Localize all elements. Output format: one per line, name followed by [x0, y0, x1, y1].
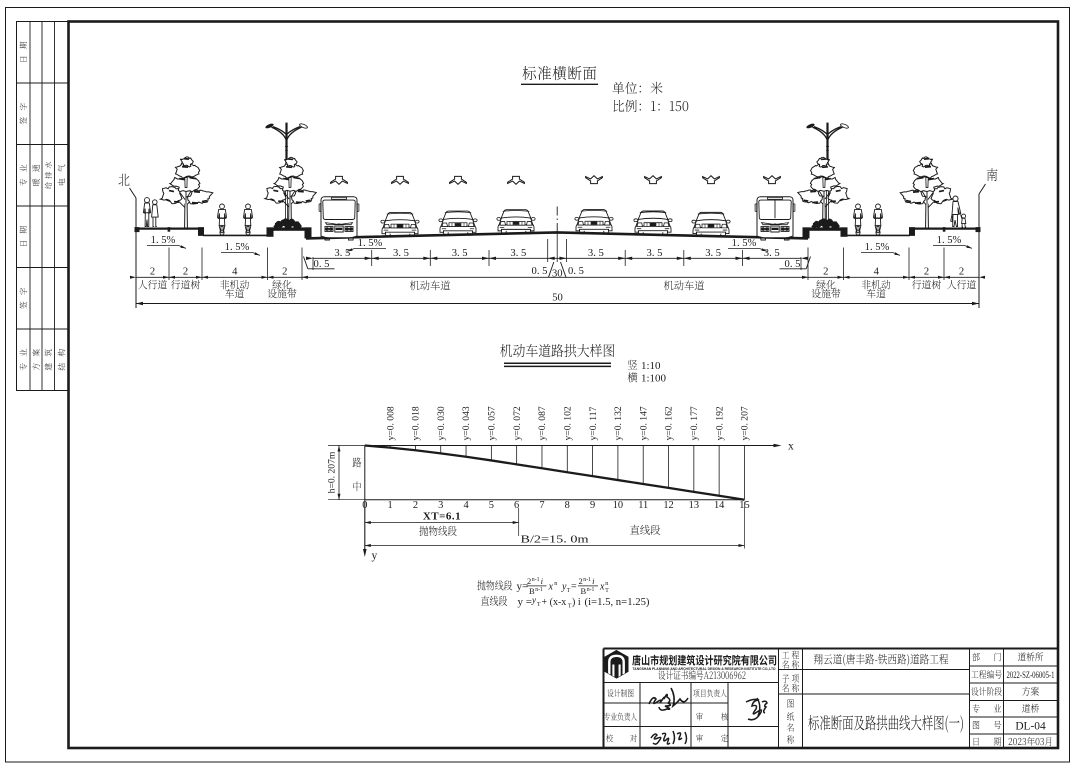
svg-text:1:10: 1:10 — [641, 360, 661, 372]
svg-text:50: 50 — [552, 293, 563, 304]
svg-text:y=0. 132: y=0. 132 — [613, 406, 624, 440]
svg-text:(i=1.5, n=1.25): (i=1.5, n=1.25) — [585, 597, 651, 608]
svg-text:2: 2 — [924, 266, 929, 277]
svg-text:3. 5: 3. 5 — [647, 248, 663, 259]
svg-text:i: i — [592, 576, 595, 586]
svg-text:n-1: n-1 — [535, 587, 543, 593]
svg-text:3. 5: 3. 5 — [588, 248, 604, 259]
svg-text:) i: ) i — [572, 597, 581, 608]
svg-text:3. 5: 3. 5 — [705, 248, 721, 259]
svg-text:0. 5: 0. 5 — [568, 266, 584, 277]
svg-text:y =: y = — [518, 596, 532, 608]
svg-text:=: = — [571, 582, 577, 593]
svg-text:4: 4 — [463, 500, 469, 511]
svg-text:y=0. 177: y=0. 177 — [689, 406, 700, 440]
svg-text:11: 11 — [638, 500, 648, 511]
svg-text:1. 5%: 1. 5% — [151, 235, 176, 246]
svg-text:y=0. 072: y=0. 072 — [512, 406, 523, 440]
svg-text:2022-SZ-06005-1: 2022-SZ-06005-1 — [1007, 671, 1055, 681]
svg-text:4: 4 — [874, 266, 880, 277]
svg-text:5: 5 — [489, 500, 494, 511]
svg-text:y=0. 117: y=0. 117 — [588, 406, 599, 440]
svg-text:10: 10 — [613, 500, 623, 511]
svg-text:2: 2 — [183, 266, 188, 277]
svg-text:1. 5%: 1. 5% — [732, 238, 757, 249]
svg-text:y=0. 147: y=0. 147 — [638, 406, 649, 440]
svg-text:y=0. 162: y=0. 162 — [664, 406, 675, 440]
svg-text:T: T — [537, 602, 541, 608]
svg-text:XT=6.1: XT=6.1 — [423, 511, 461, 523]
svg-text:x: x — [788, 441, 794, 453]
svg-text:B/2=15. 0m: B/2=15. 0m — [521, 534, 590, 546]
svg-text:3. 5: 3. 5 — [334, 248, 350, 259]
svg-text:2: 2 — [150, 266, 155, 277]
svg-text:y=0. 008: y=0. 008 — [385, 406, 396, 440]
svg-text:n-1: n-1 — [532, 577, 540, 583]
svg-text:3. 5: 3. 5 — [764, 248, 780, 259]
svg-text:T: T — [605, 588, 609, 594]
svg-text:2: 2 — [282, 266, 287, 277]
svg-text:2: 2 — [823, 266, 828, 277]
svg-text:1. 5%: 1. 5% — [225, 242, 250, 253]
svg-text:9: 9 — [590, 500, 595, 511]
svg-text:x: x — [548, 582, 554, 593]
svg-text:y=0. 087: y=0. 087 — [537, 406, 548, 440]
svg-text:3. 5: 3. 5 — [393, 248, 409, 259]
svg-text:3. 5: 3. 5 — [452, 248, 468, 259]
svg-text:7: 7 — [539, 500, 544, 511]
svg-text:3: 3 — [438, 500, 443, 511]
svg-text:1. 5%: 1. 5% — [358, 238, 383, 249]
svg-text:1: 1 — [388, 500, 393, 511]
svg-text:2: 2 — [579, 576, 583, 586]
svg-text:13: 13 — [689, 500, 699, 511]
svg-text:+ (x-x: + (x-x — [542, 597, 567, 608]
svg-text:12: 12 — [663, 500, 673, 511]
svg-text:y: y — [372, 550, 378, 562]
svg-text:8: 8 — [565, 500, 570, 511]
svg-text:DL-04: DL-04 — [1015, 721, 1046, 733]
svg-text:y=0. 030: y=0. 030 — [436, 406, 447, 440]
svg-text:y=0. 018: y=0. 018 — [411, 406, 422, 440]
svg-text:i: i — [541, 576, 544, 586]
svg-text:TANGSHAN PLANNING AND ARCHITEC: TANGSHAN PLANNING AND ARCHITECTURAL DESI… — [633, 667, 777, 671]
svg-text:y=0. 207: y=0. 207 — [740, 406, 751, 440]
svg-text:2: 2 — [413, 500, 418, 511]
svg-text:2: 2 — [959, 266, 964, 277]
svg-text:n-1: n-1 — [583, 577, 591, 583]
svg-text:y=0. 057: y=0. 057 — [487, 406, 498, 440]
svg-text:n: n — [554, 580, 557, 587]
svg-text:h=0. 207m: h=0. 207m — [327, 451, 338, 493]
svg-text:3. 5: 3. 5 — [510, 248, 526, 259]
svg-text:y=0. 043: y=0. 043 — [461, 406, 472, 440]
svg-text:n-1: n-1 — [587, 587, 595, 593]
svg-text:1:100: 1:100 — [641, 373, 667, 385]
svg-text:4: 4 — [232, 266, 238, 277]
svg-text:14: 14 — [714, 500, 725, 511]
svg-text:y=0. 102: y=0. 102 — [562, 406, 573, 440]
svg-text:30: 30 — [552, 269, 563, 280]
svg-text:0. 5: 0. 5 — [532, 266, 548, 277]
svg-text:y: y — [531, 595, 536, 605]
svg-text:1. 5%: 1. 5% — [937, 235, 962, 246]
svg-text:y=0. 192: y=0. 192 — [714, 406, 725, 440]
svg-text:n: n — [605, 580, 608, 587]
svg-text:B: B — [581, 586, 587, 596]
svg-text:x: x — [599, 582, 605, 593]
svg-text:2: 2 — [527, 576, 531, 586]
svg-text:1. 5%: 1. 5% — [865, 242, 890, 253]
